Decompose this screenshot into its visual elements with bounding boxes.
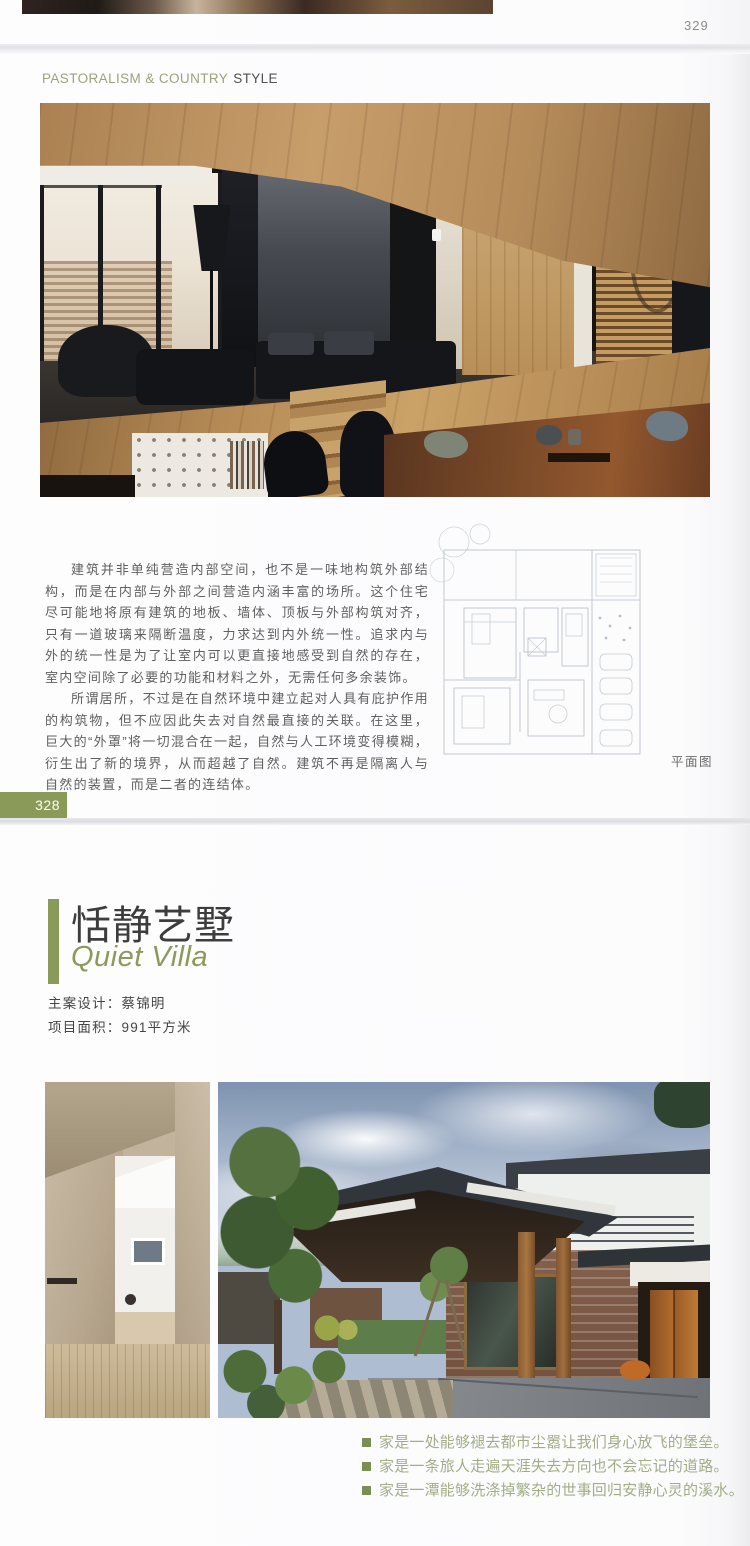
- sofa-cushion: [324, 331, 374, 355]
- window-mullion: [40, 173, 44, 361]
- area-row: 项目面积：991平方米: [48, 1016, 192, 1036]
- books: [230, 441, 264, 489]
- floor-plan-caption: 平面图: [671, 751, 713, 770]
- book-scan: 329 PASTORALISM & COUNTRYSTYLE: [0, 0, 750, 1546]
- article-text: 建筑并非单纯营造内部空间，也不是一味地构筑外部结构，而是在内部与外部之间营造内涵…: [45, 559, 429, 796]
- sofa-cushion: [268, 333, 314, 355]
- white-shelving: [132, 433, 268, 497]
- wooden-door: [650, 1290, 698, 1382]
- chapter-header-primary: PASTORALISM & COUNTRY: [42, 71, 228, 86]
- paragraph-1: 建筑并非单纯营造内部空间，也不是一味地构筑外部结构，而是在内部与外部之间营造内涵…: [45, 559, 429, 688]
- window-mullion: [156, 173, 161, 361]
- bullet-item: 家是一处能够褪去都市尘嚣让我们身心放飞的堡垒。: [362, 1434, 714, 1451]
- bullet-square-icon: [362, 1462, 371, 1471]
- designer-name: 蔡锦明: [122, 996, 166, 1011]
- bullet-text: 家是一处能够褪去都市尘嚣让我们身心放飞的堡垒。: [379, 1434, 729, 1451]
- corridor-wood-floor: [45, 1344, 210, 1418]
- bullet-text: 家是一条旅人走遍天涯失去方向也不会忘记的道路。: [379, 1458, 729, 1475]
- page-number-329: 329: [684, 18, 709, 33]
- corridor-photo: [45, 1082, 210, 1418]
- wood-porch-column: [556, 1238, 571, 1394]
- designer-row: 主案设计：蔡锦明: [48, 992, 166, 1012]
- paragraph-2: 所谓居所，不过是在自然环境中建立起对人具有庇护作用的构筑物，但不应因此失去对自然…: [45, 688, 429, 796]
- yellow-bush: [304, 1310, 362, 1346]
- villa-title-en: Quiet Villa: [71, 941, 208, 974]
- floor-vase: [125, 1294, 136, 1305]
- chapter-header-secondary: STYLE: [233, 71, 278, 86]
- wall-shelf: [47, 1278, 77, 1284]
- area-label: 项目面积：: [48, 1020, 122, 1035]
- pumpkin-decor: [620, 1360, 650, 1380]
- page-329-bottom: 329: [0, 0, 750, 44]
- bright-room-doorway: [115, 1156, 177, 1354]
- page-number-tab-328: 328: [0, 792, 67, 818]
- previous-page-photo-strip: [22, 0, 493, 14]
- area-value: 991平方米: [122, 1020, 192, 1035]
- bullet-item: 家是一潭能够洗涤掉繁杂的世事回归安静心灵的溪水。: [362, 1482, 714, 1499]
- staked-tree: [414, 1232, 484, 1316]
- sloped-white-ceiling: [115, 1156, 177, 1208]
- floor-plan-svg: [424, 522, 660, 768]
- designer-label: 主案设计：: [48, 996, 122, 1011]
- page-edge-shade: [728, 825, 750, 1546]
- decor-stone: [646, 411, 688, 441]
- ottoman: [136, 349, 254, 405]
- bullet-list: 家是一处能够褪去都市尘嚣让我们身心放飞的堡垒。 家是一条旅人走遍天涯失去方向也不…: [362, 1434, 714, 1506]
- wood-porch-column: [518, 1232, 535, 1394]
- bullet-square-icon: [362, 1438, 371, 1447]
- bullet-square-icon: [362, 1486, 371, 1495]
- villa-exterior-photo: [218, 1082, 710, 1418]
- tray: [548, 453, 610, 462]
- page-edge-shade: [728, 54, 750, 818]
- title-accent-bar: [48, 899, 59, 984]
- dark-curtain: [222, 169, 258, 367]
- interior-living-room-photo: [40, 103, 710, 497]
- page-divider: [0, 818, 750, 825]
- page-divider: [0, 44, 750, 54]
- floor-plan-drawing: [424, 522, 660, 768]
- decor-stone: [424, 431, 468, 458]
- chapter-header: PASTORALISM & COUNTRYSTYLE: [42, 71, 278, 86]
- cup: [568, 429, 581, 445]
- bullet-item: 家是一条旅人走遍天涯失去方向也不会忘记的道路。: [362, 1458, 714, 1475]
- pine-branch: [654, 1082, 710, 1128]
- wall-sconce: [432, 229, 441, 241]
- teapot: [536, 425, 562, 445]
- floor-shadow: [40, 475, 135, 497]
- bullet-text: 家是一潭能够洗涤掉繁杂的世事回归安静心灵的溪水。: [379, 1482, 744, 1499]
- small-window: [131, 1238, 165, 1265]
